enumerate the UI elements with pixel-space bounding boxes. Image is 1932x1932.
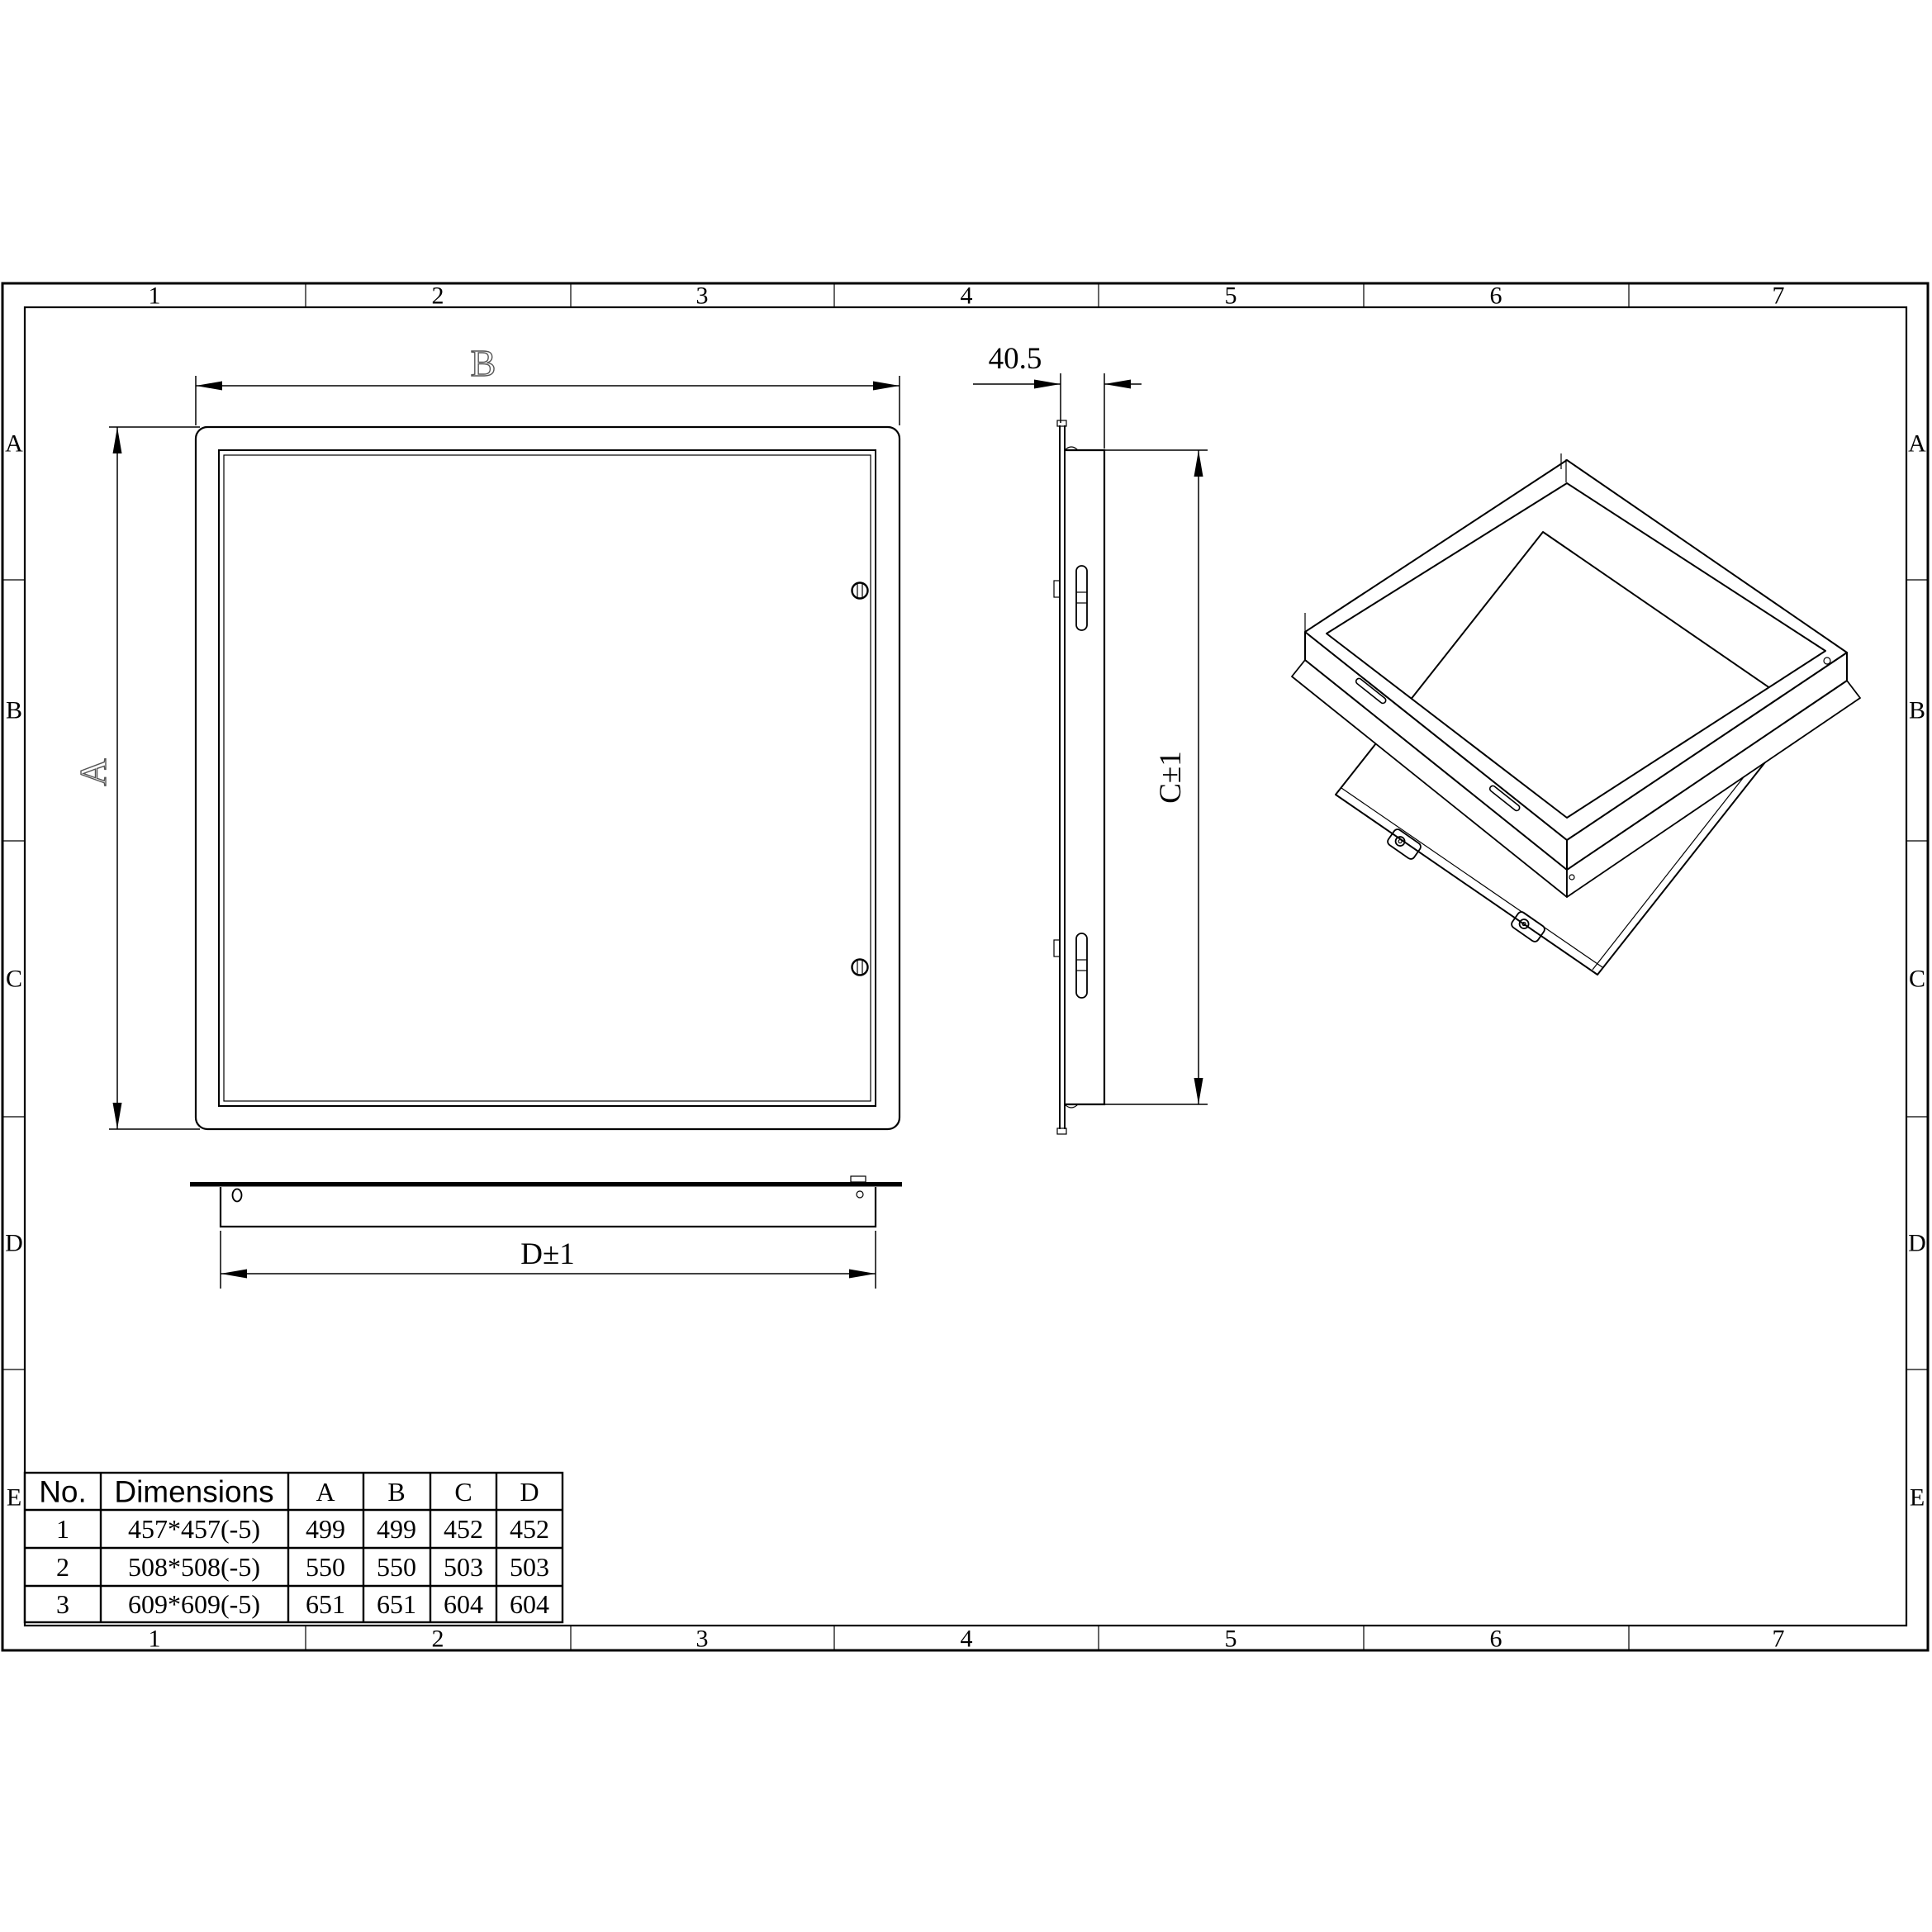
zone-row-label: E: [1910, 1484, 1925, 1512]
zone-rows-right: A B C D E: [1908, 430, 1926, 1512]
panel-opening: [219, 450, 876, 1106]
zone-row-label: B: [1909, 697, 1925, 724]
dim-label-depth: 40.5: [989, 342, 1042, 376]
col-header-no: No.: [39, 1475, 87, 1509]
cell: 651: [377, 1589, 416, 1619]
hole: [233, 1189, 242, 1202]
flange-end-cap: [1057, 420, 1066, 426]
mounting-tab: [1054, 940, 1060, 957]
zone-col-label: 4: [961, 1626, 973, 1653]
zone-row-label: C: [1909, 966, 1925, 993]
zone-row-label: E: [7, 1484, 21, 1512]
zone-col-label: 3: [696, 1626, 709, 1653]
zone-col-label: 2: [432, 282, 444, 310]
dim-label-D: D±1: [520, 1237, 575, 1271]
col-header-dimensions: Dimensions: [114, 1475, 273, 1509]
latch-slot: [1076, 933, 1087, 998]
side-view: 40.5 C±1: [973, 342, 1208, 1134]
col-header-b: B: [387, 1477, 405, 1507]
zone-row-label: A: [1908, 430, 1926, 458]
dim-label-A: A: [72, 758, 114, 786]
dim-label-B: B: [471, 342, 496, 384]
mounting-tab: [1054, 581, 1060, 597]
zone-rows-left: A B C D E: [5, 430, 23, 1512]
zone-col-label: 1: [149, 282, 161, 310]
dimension-A: A: [72, 427, 200, 1129]
screw-icon: [852, 960, 868, 975]
cell: 1: [56, 1514, 69, 1544]
cell: 604: [510, 1589, 549, 1619]
cell: 604: [444, 1589, 483, 1619]
cell: 508*508(-5): [128, 1552, 260, 1582]
zone-col-label: 5: [1225, 1626, 1237, 1653]
panel-depth-box: [1065, 450, 1104, 1104]
pan-body: [221, 1187, 876, 1227]
flange-edge: [190, 1182, 902, 1187]
zone-col-label: 2: [432, 1626, 444, 1653]
zone-col-label: 3: [696, 282, 709, 310]
sheet-border: 1 2 3 4 5 6 7 1 2 3 4 5 6 7 A B C D E A: [2, 282, 1928, 1653]
screw-icon: [852, 583, 868, 599]
cell: 550: [377, 1552, 416, 1582]
cell: 651: [306, 1589, 345, 1619]
cell: 609*609(-5): [128, 1589, 260, 1619]
bottom-view: D±1: [190, 1176, 902, 1289]
zone-row-label: B: [6, 697, 22, 724]
dimension-B: B: [196, 342, 900, 425]
dimension-D: D±1: [221, 1231, 876, 1289]
zone-col-label: 4: [961, 282, 973, 310]
zone-col-label: 5: [1225, 282, 1237, 310]
cell: 550: [306, 1552, 345, 1582]
cell: 499: [306, 1514, 345, 1544]
zone-col-label: 6: [1490, 282, 1502, 310]
zone-row-label: C: [6, 966, 22, 993]
cell: 499: [377, 1514, 416, 1544]
clip-tab: [851, 1176, 866, 1182]
latch-slot: [1076, 566, 1087, 630]
cell: 452: [444, 1514, 483, 1544]
zone-col-label: 6: [1490, 1626, 1502, 1653]
dimension-depth: 40.5: [973, 342, 1142, 449]
cell: 452: [510, 1514, 549, 1544]
flange-end-cap: [1057, 1128, 1066, 1134]
isometric-view: [1292, 453, 1860, 975]
zone-col-label: 7: [1773, 282, 1785, 310]
zone-col-label: 1: [149, 1626, 161, 1653]
cell: 3: [56, 1589, 69, 1619]
front-view: B A: [72, 342, 900, 1129]
zone-col-label: 7: [1773, 1626, 1785, 1653]
cell: 503: [510, 1552, 549, 1582]
cell: 503: [444, 1552, 483, 1582]
zone-columns-top: 1 2 3 4 5 6 7: [149, 282, 1785, 310]
panel-door: [224, 455, 871, 1101]
col-header-c: C: [454, 1477, 472, 1507]
panel-outer-frame: [196, 427, 900, 1129]
dimension-C: C±1: [1066, 450, 1208, 1104]
cell: 457*457(-5): [128, 1514, 260, 1544]
drawing-sheet: 1 2 3 4 5 6 7 1 2 3 4 5 6 7 A B C D E A: [0, 0, 1932, 1932]
zone-row-label: D: [5, 1230, 23, 1257]
drawing-canvas: 1 2 3 4 5 6 7 1 2 3 4 5 6 7 A B C D E A: [0, 0, 1932, 1932]
zone-columns-bottom: 1 2 3 4 5 6 7: [149, 1626, 1785, 1653]
cell: 2: [56, 1552, 69, 1582]
zone-row-label: D: [1908, 1230, 1926, 1257]
zone-row-label: A: [5, 430, 23, 458]
hole-small: [857, 1191, 863, 1198]
col-header-d: D: [520, 1477, 539, 1507]
dim-label-C: C±1: [1154, 751, 1188, 804]
col-header-a: A: [316, 1477, 335, 1507]
size-table: No. Dimensions A B C D 1 457*457(-5) 499…: [25, 1473, 563, 1622]
